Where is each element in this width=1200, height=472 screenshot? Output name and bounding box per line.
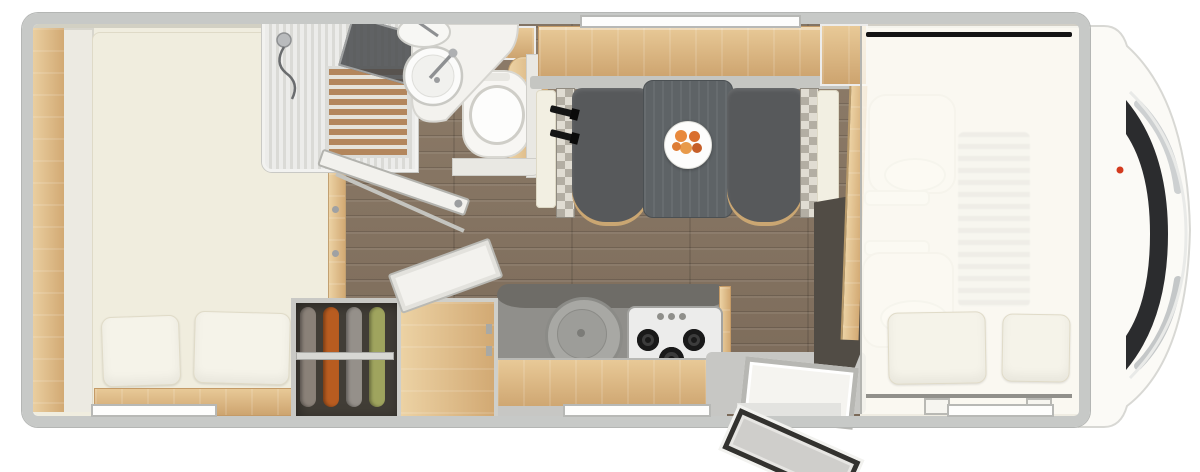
floor-plan-canvas <box>0 0 1200 472</box>
window-bottom-cab <box>947 404 1054 417</box>
window-bottom-bedroom <box>91 404 217 417</box>
vehicle-wall <box>22 13 1090 427</box>
brand-badge <box>1117 167 1124 174</box>
window-bottom-kitchen <box>563 404 711 417</box>
window-top-dinette <box>580 15 801 28</box>
